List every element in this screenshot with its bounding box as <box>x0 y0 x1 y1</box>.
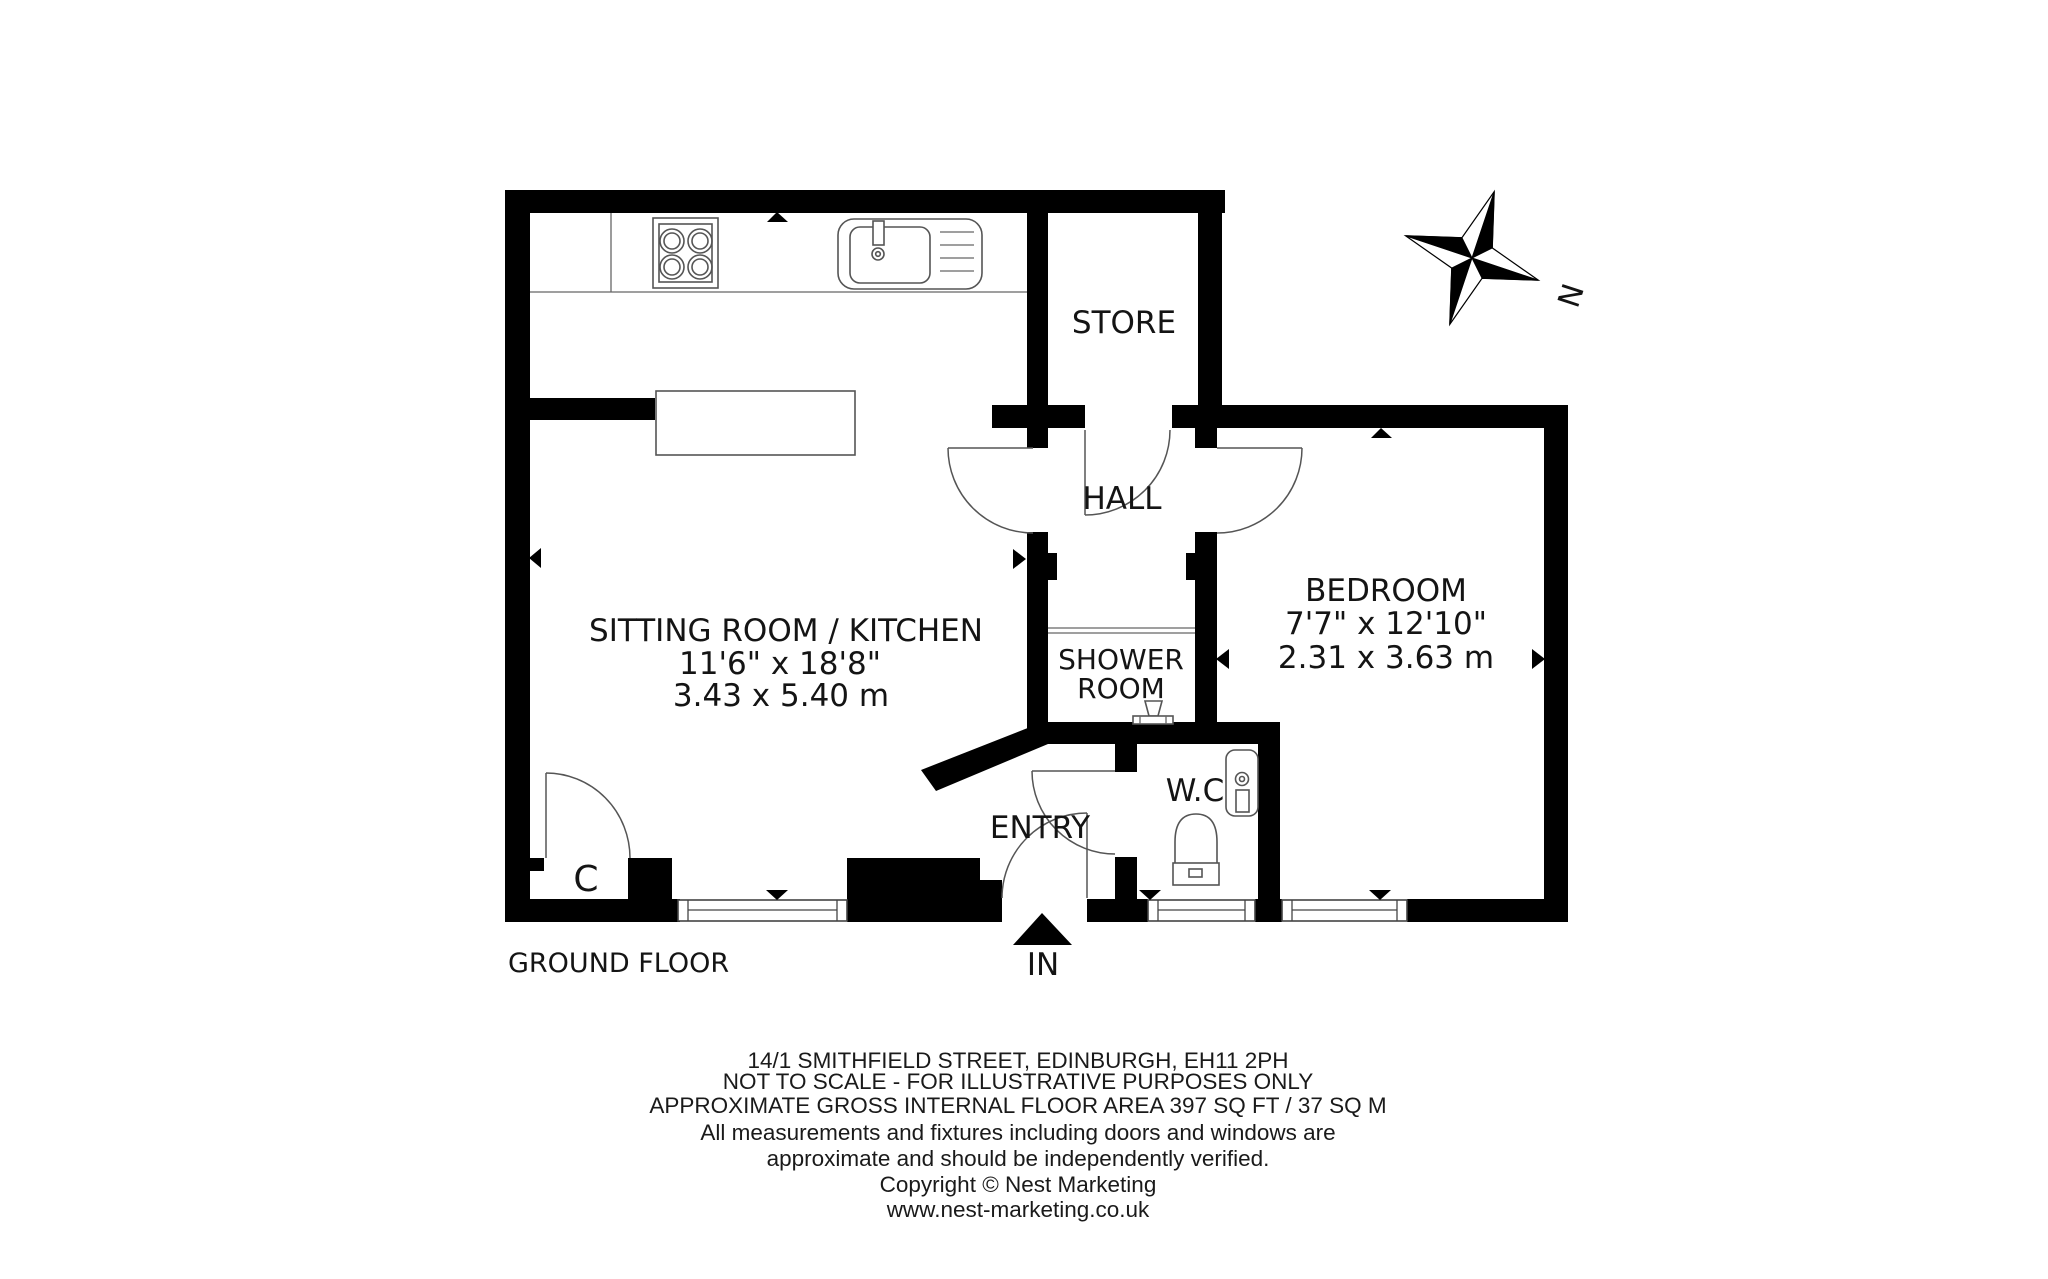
door-bedroom <box>1217 448 1302 533</box>
floor-title: GROUND FLOOR <box>508 948 729 979</box>
marker-right-wall <box>1532 649 1545 669</box>
in-arrow-icon <box>1013 913 1072 945</box>
marker-top-wall <box>767 212 788 222</box>
marker-left-wall <box>529 548 541 568</box>
entrance-arrow: IN <box>1013 913 1072 983</box>
wall-store-left <box>1027 213 1048 448</box>
floorplan-svg: IN N SITTING ROOM / KITCHEN 11'6" x 18'8… <box>0 0 2048 1279</box>
wall-wc-right <box>1258 722 1280 922</box>
window-bedroom <box>1282 900 1407 921</box>
marker-window-wc <box>1139 890 1161 900</box>
floorplan-page: IN N SITTING ROOM / KITCHEN 11'6" x 18'8… <box>0 0 2048 1279</box>
bedroom-label: BEDROOM <box>1305 573 1467 609</box>
compass-icon: N <box>1383 169 1589 346</box>
sitting-room-dims-metric: 3.43 x 5.40 m <box>673 678 889 714</box>
wall-top <box>505 190 1225 213</box>
door-jamb-left <box>1048 553 1057 580</box>
footer-disclaimer-line1: All measurements and fixtures including … <box>700 1120 1335 1145</box>
sink-icon <box>838 219 982 289</box>
basin-icon <box>1226 750 1258 816</box>
hall-label: HALL <box>1082 481 1162 517</box>
compass-north-label: N <box>1549 279 1589 311</box>
window-wc <box>1148 900 1255 921</box>
cupboard-right-wall <box>628 858 672 922</box>
cupboard-jamb <box>530 858 544 871</box>
wall-bottom-b-step <box>980 880 1002 922</box>
marker-hall-wall <box>1013 549 1026 569</box>
marker-bedroom-top <box>1371 428 1392 438</box>
bedroom-dims-imperial: 7'7" x 12'10" <box>1285 606 1487 642</box>
footer: 14/1 SMITHFIELD STREET, EDINBURGH, EH11 … <box>649 1048 1386 1222</box>
entry-label: ENTRY <box>990 810 1090 846</box>
window-sitting-room <box>678 900 847 921</box>
marker-window-bedroom <box>1369 890 1391 900</box>
door-jamb-right <box>1186 553 1195 580</box>
footer-disclaimer-line2: approximate and should be independently … <box>767 1146 1270 1171</box>
wall-kitchen-stub <box>530 398 655 420</box>
wall-wc-left-upper <box>1115 744 1137 772</box>
door-sitting-room <box>948 448 1033 533</box>
footer-not-to-scale: NOT TO SCALE - FOR ILLUSTRATIVE PURPOSES… <box>723 1069 1314 1094</box>
wall-bedroom-divider-lower <box>1195 532 1217 744</box>
marker-window-sitting <box>766 890 788 900</box>
wall-store-right <box>1198 190 1222 428</box>
wall-entry-diagonal <box>921 720 1048 791</box>
wall-sitting-hall-lower <box>1027 532 1048 744</box>
wall-shower-bottom <box>1027 722 1280 744</box>
wall-right <box>1544 405 1568 922</box>
wall-bedroom-divider-upper <box>1195 428 1217 448</box>
footer-website: www.nest-marketing.co.uk <box>886 1197 1150 1222</box>
marker-divider-wall <box>1216 649 1229 669</box>
cupboard-label: C <box>573 859 598 900</box>
wall-bottom-c <box>1087 899 1148 922</box>
wall-bottom-d <box>1255 899 1282 922</box>
door-cupboard <box>546 773 630 858</box>
bedroom-dims-metric: 2.31 x 3.63 m <box>1278 640 1494 676</box>
in-label: IN <box>1027 947 1059 983</box>
toilet-icon <box>1173 814 1219 885</box>
footer-copyright: Copyright © Nest Marketing <box>880 1172 1157 1197</box>
store-label: STORE <box>1072 305 1176 341</box>
kitchen-island <box>656 391 855 455</box>
wall-bottom-b <box>847 858 980 922</box>
wall-left <box>505 190 530 922</box>
wc-label: W.C <box>1166 773 1225 809</box>
stove-icon <box>653 218 718 288</box>
sitting-room-dims-imperial: 11'6" x 18'8" <box>679 646 881 682</box>
shower-room-label-line2: ROOM <box>1077 672 1165 705</box>
wall-bottom-e <box>1407 899 1568 922</box>
sitting-room-label: SITTING ROOM / KITCHEN <box>589 613 983 649</box>
footer-floor-area: APPROXIMATE GROSS INTERNAL FLOOR AREA 39… <box>649 1093 1386 1118</box>
wall-bedroom-top <box>1172 405 1568 428</box>
